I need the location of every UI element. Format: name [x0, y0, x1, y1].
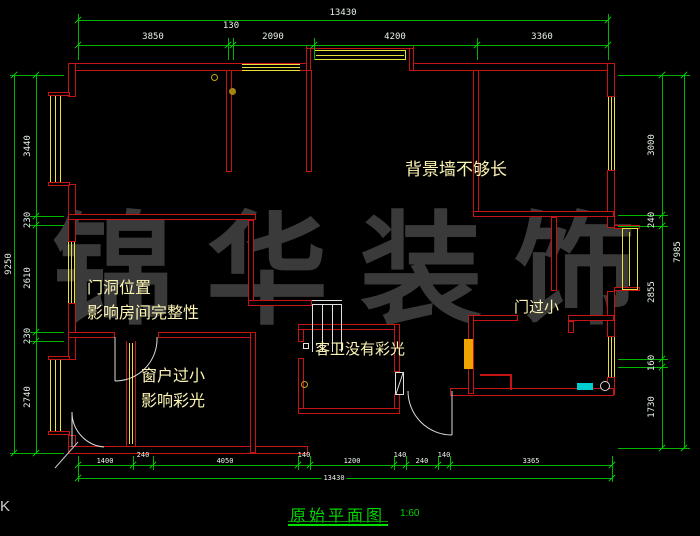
cad-floorplan-canvas: 锦华装饰 13430 3850 130 2090 4200 3360 9250 …: [0, 0, 700, 536]
dim-bottom-total: 13430: [321, 474, 346, 482]
annotation-bathroom-light: 客卫没有彩光: [315, 338, 405, 359]
annotation-window-small-line1: 窗户过小: [141, 362, 205, 386]
dim-bottom-seg: 140: [438, 451, 451, 459]
dim-bottom-seg: 3365: [523, 457, 540, 465]
dim-top-seg: 4200: [384, 32, 406, 42]
dim-right-seg: 160: [647, 355, 657, 371]
annotation-door-position-line1: 门洞位置: [87, 274, 151, 298]
title-underline: [288, 521, 388, 522]
dim-top-seg: 2090: [262, 32, 284, 42]
door-swing-arcs: [0, 0, 700, 536]
dim-left-seg: 230: [23, 328, 33, 344]
dim-left-seg: 2610: [23, 267, 33, 289]
dim-right-seg: 2855: [647, 281, 657, 303]
dim-right-seg: 240: [647, 212, 657, 228]
annotation-door-position-line2: 影响房间完整性: [87, 299, 199, 323]
dim-top-seg: 3360: [531, 32, 553, 42]
drawing-title: 原始平面图: [290, 502, 385, 526]
annotation-window-small-line2: 影响彩光: [141, 387, 205, 411]
dim-top-seg: 130: [223, 21, 239, 31]
corner-mark: K: [0, 498, 10, 515]
dim-bottom-seg: 240: [137, 451, 150, 459]
dim-top-total: 13430: [329, 8, 356, 18]
dim-left-seg: 230: [23, 212, 33, 228]
dim-bottom-seg: 140: [394, 451, 407, 459]
dim-top-seg: 3850: [142, 32, 164, 42]
dim-bottom-seg: 240: [416, 457, 429, 465]
dim-left-seg: 3440: [23, 135, 33, 157]
annotation-background-wall: 背景墙不够长: [405, 155, 507, 180]
title-underline-thick: [288, 524, 388, 526]
dim-left-seg: 2740: [23, 386, 33, 408]
dim-right-total: 7985: [673, 241, 683, 263]
drawing-scale: 1:60: [400, 508, 419, 519]
dim-bottom-seg: 4050: [217, 457, 234, 465]
dim-bottom-seg: 1400: [97, 457, 114, 465]
dim-bottom-seg: 140: [298, 451, 311, 459]
dim-right-seg: 1730: [647, 396, 657, 418]
dim-bottom-seg: 1200: [344, 457, 361, 465]
dim-right-seg: 3000: [647, 134, 657, 156]
dim-left-total: 9250: [4, 253, 14, 275]
annotation-door-small: 门过小: [514, 296, 559, 317]
